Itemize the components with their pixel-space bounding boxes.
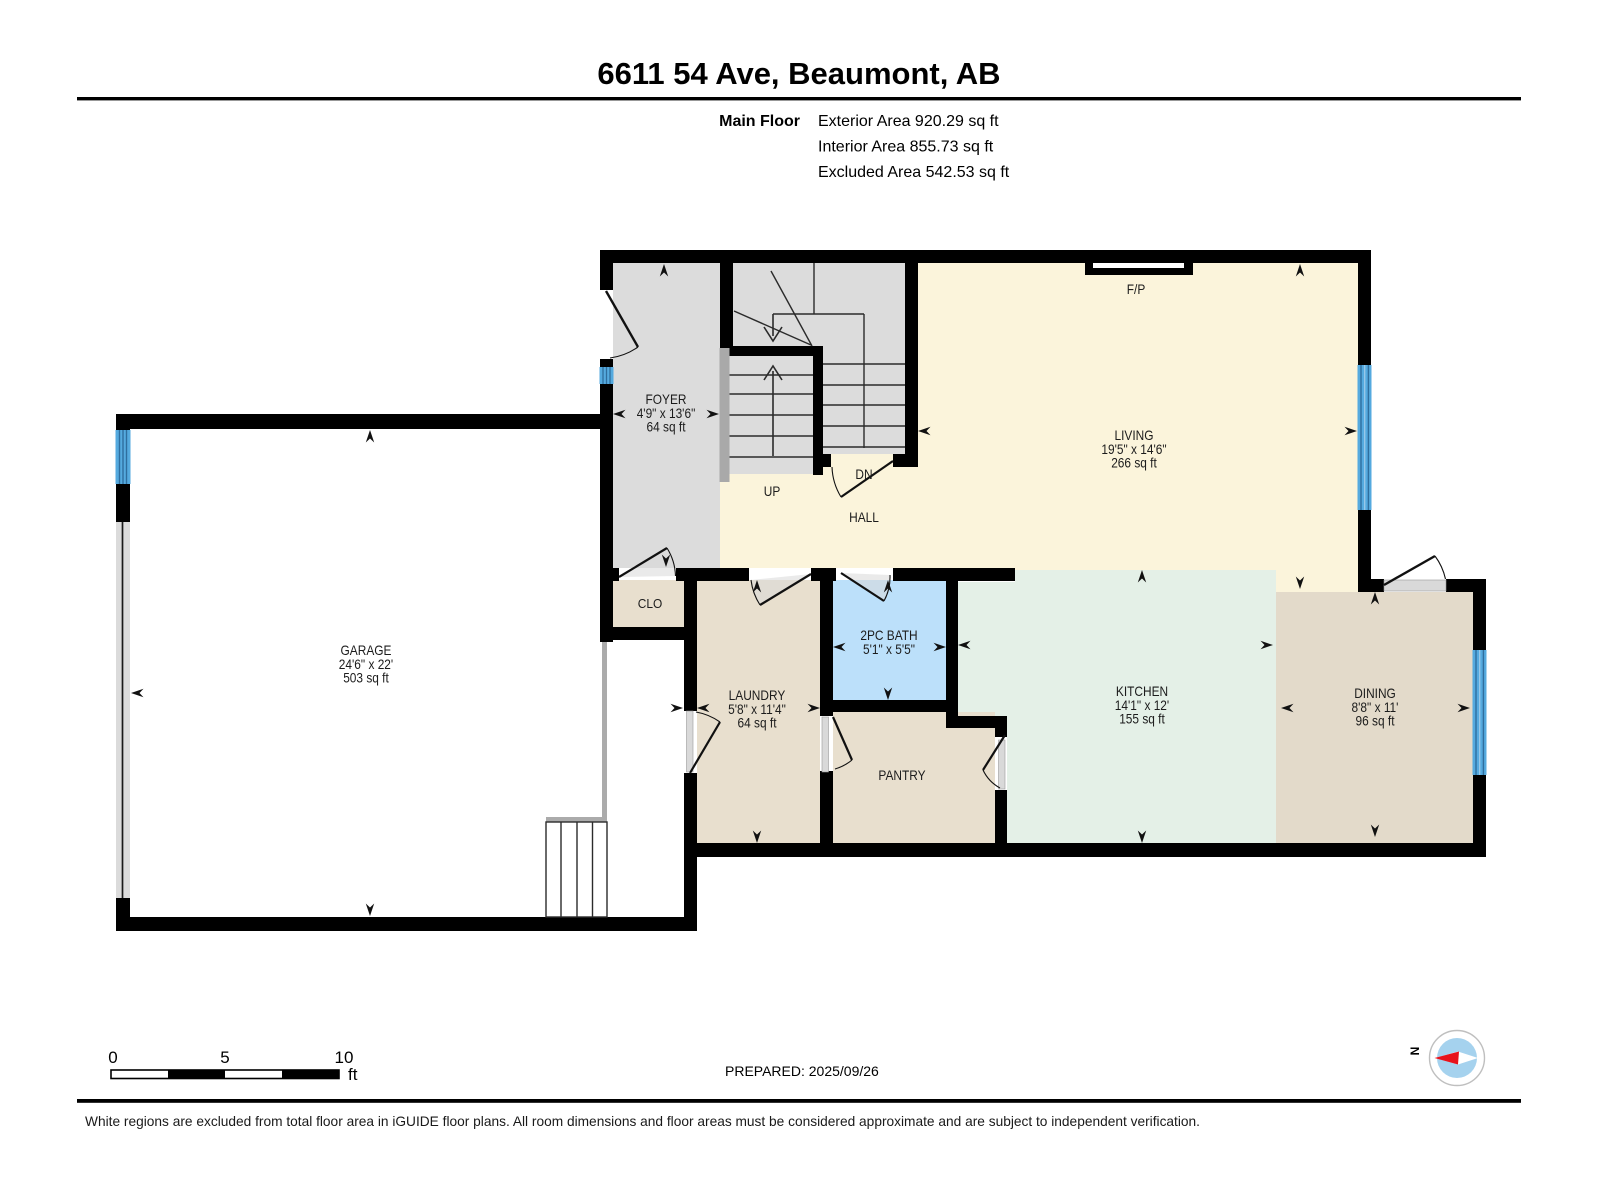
svg-text:266 sq ft: 266 sq ft [1111, 455, 1157, 471]
svg-text:White regions are excluded fro: White regions are excluded from total fl… [85, 1113, 1200, 1129]
svg-text:HALL: HALL [849, 509, 879, 525]
svg-text:UP: UP [764, 483, 781, 499]
svg-text:N: N [1408, 1047, 1422, 1056]
svg-text:96 sq ft: 96 sq ft [1356, 713, 1395, 729]
svg-text:Excluded Area 542.53 sq ft: Excluded Area 542.53 sq ft [818, 164, 1010, 181]
svg-text:64 sq ft: 64 sq ft [647, 419, 686, 435]
svg-text:5'1" x 5'5": 5'1" x 5'5" [863, 641, 915, 657]
svg-text:DN: DN [855, 466, 872, 482]
svg-text:155 sq ft: 155 sq ft [1119, 711, 1165, 727]
svg-text:CLO: CLO [638, 596, 663, 611]
svg-text:Exterior Area 920.29 sq ft: Exterior Area 920.29 sq ft [818, 113, 999, 130]
svg-text:64 sq ft: 64 sq ft [738, 715, 777, 731]
svg-text:Main Floor: Main Floor [719, 113, 800, 130]
svg-text:6611 54 Ave, Beaumont, AB: 6611 54 Ave, Beaumont, AB [597, 56, 1000, 91]
svg-text:PANTRY: PANTRY [878, 767, 926, 783]
svg-text:0: 0 [108, 1048, 117, 1067]
svg-text:503 sq ft: 503 sq ft [343, 670, 389, 686]
svg-text:F/P: F/P [1127, 281, 1146, 297]
svg-text:PREPARED: 2025/09/26: PREPARED: 2025/09/26 [725, 1063, 879, 1079]
svg-text:5: 5 [220, 1048, 229, 1067]
svg-text:Interior Area 855.73 sq ft: Interior Area 855.73 sq ft [818, 139, 994, 156]
svg-text:ft: ft [348, 1065, 358, 1084]
